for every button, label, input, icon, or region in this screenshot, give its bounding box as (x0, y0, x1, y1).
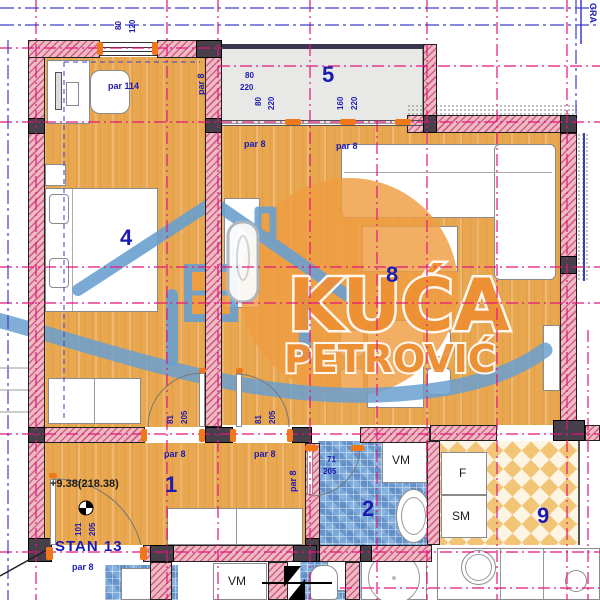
door-leaf-bedroom (199, 373, 205, 427)
dim-205: 205 (323, 467, 336, 476)
monitor (55, 72, 62, 110)
wall-bottom (143, 545, 432, 562)
sofa-chaise (494, 144, 556, 280)
opening-marker (46, 547, 53, 560)
opening-marker (230, 429, 236, 442)
column (150, 545, 174, 562)
terrace-parapet (218, 44, 430, 49)
dim-81: 81 (166, 415, 175, 424)
wall-bath-top (360, 427, 430, 443)
opening-marker (199, 429, 205, 442)
room-number-9: 9 (537, 503, 549, 529)
parquet-label: par 8 (288, 470, 298, 492)
wall-lower-3 (345, 562, 360, 600)
dining-chair (427, 368, 451, 395)
wall-hall-top (44, 427, 145, 443)
parquet-label: par 8 (336, 141, 358, 151)
bathroom-sink-basin (401, 497, 426, 535)
parquet-label: par 8 (254, 449, 276, 459)
column (196, 40, 222, 58)
parquet-label: par 8 (72, 562, 94, 572)
boundary-label: GRA (588, 3, 598, 23)
dim-101: 101 (74, 523, 83, 536)
lower-washing-machine-label: VM (228, 574, 246, 588)
room-number-5: 5 (322, 62, 334, 88)
opening-marker (97, 42, 103, 55)
dining-chair (340, 368, 364, 395)
dining-chair (427, 330, 451, 357)
fridge-label: F (459, 466, 466, 480)
column (205, 118, 222, 133)
dim-205: 205 (180, 411, 189, 424)
opening-marker (236, 368, 243, 373)
column (560, 256, 577, 274)
dim-205: 205 (88, 523, 97, 536)
parquet-label: par 8 (196, 73, 206, 95)
room-number-2: 2 (362, 496, 374, 522)
cabinet-mirror (232, 225, 250, 283)
room-number-4: 4 (120, 225, 132, 251)
door-leaf-bathroom (307, 449, 313, 495)
opening-marker (340, 119, 356, 125)
dining-chair (340, 330, 364, 357)
hall-closet (167, 508, 303, 545)
lower-toilet (310, 565, 338, 600)
opening-marker (351, 445, 364, 451)
opening-marker (287, 429, 293, 442)
column (28, 118, 45, 134)
wall-top-right-of-window (157, 40, 197, 58)
exterior-lines-left (0, 368, 28, 412)
parquet-label: par 8 (244, 139, 266, 149)
apartment-label: STAN 13 (55, 538, 123, 555)
wall-kitchen-top (430, 425, 497, 441)
dining-table (367, 320, 424, 408)
pillow (49, 194, 69, 224)
small-appliance (565, 570, 587, 592)
counter-divider (543, 549, 544, 599)
coffee-table (362, 226, 458, 272)
column (553, 420, 585, 441)
room-number-1: 1 (165, 472, 177, 498)
opening-marker (141, 429, 147, 442)
wall-bedroom-living (205, 57, 222, 427)
wall-top-left (28, 40, 100, 58)
room-number-8: 8 (386, 262, 398, 288)
wall-terrace-right (423, 44, 437, 120)
dim-71: 71 (327, 455, 336, 464)
column (292, 427, 312, 443)
counter-divider (500, 549, 501, 599)
shower-drain (392, 576, 396, 580)
level-label: +9.38(218.38) (50, 478, 119, 490)
dim-80: 80 (254, 97, 263, 106)
bed-cover-line (72, 189, 73, 311)
floor-plan: KUĆA PETROVIĆ (0, 0, 600, 600)
nightstand (45, 164, 66, 186)
opening-marker (199, 368, 206, 373)
column (293, 545, 317, 562)
tv-stand (543, 325, 560, 391)
dim-80: 80 (245, 71, 254, 80)
keyboard (66, 82, 79, 106)
neighbor-wall-line (583, 133, 585, 281)
terrace-door-line (222, 120, 423, 121)
column (28, 427, 45, 443)
dim-220: 220 (240, 83, 253, 92)
door-leaf-living (236, 373, 242, 427)
column (205, 427, 233, 443)
kitchen-right-line (578, 441, 580, 545)
dim-120: 120 (128, 20, 137, 33)
dim-80: 80 (114, 21, 123, 30)
wall-lower-1 (150, 562, 172, 600)
washing-machine-label: VM (392, 453, 410, 467)
dim-160: 160 (336, 97, 345, 110)
office-chair (90, 70, 130, 114)
dim-81: 81 (254, 415, 263, 424)
wall-living-right (560, 133, 577, 425)
window-top (100, 42, 157, 56)
opening-marker (140, 547, 147, 560)
kitchen-sink-inner (465, 554, 492, 581)
parapet-label-114: par 114 (108, 81, 139, 91)
wall-lower-2 (268, 562, 288, 600)
dim-205: 205 (268, 411, 277, 424)
opening-marker (305, 445, 318, 451)
opening-marker (395, 119, 411, 125)
wardrobe-divider (94, 379, 95, 423)
hall-closet-divider (236, 509, 237, 544)
terrace-door-line (222, 125, 423, 126)
pillow (49, 258, 69, 288)
opening-marker (152, 42, 158, 55)
sofa-back-line (344, 172, 552, 173)
wall-bath-kitchen (427, 441, 440, 545)
column (423, 115, 437, 133)
column (560, 115, 577, 133)
dishwasher-label: SM (452, 509, 470, 523)
dim-220: 220 (267, 97, 276, 110)
opening-marker (285, 119, 301, 125)
wall-kitchen-top-right (585, 425, 600, 441)
parquet-label: par 8 (164, 449, 186, 459)
column (360, 545, 372, 562)
dim-220: 220 (350, 97, 359, 110)
